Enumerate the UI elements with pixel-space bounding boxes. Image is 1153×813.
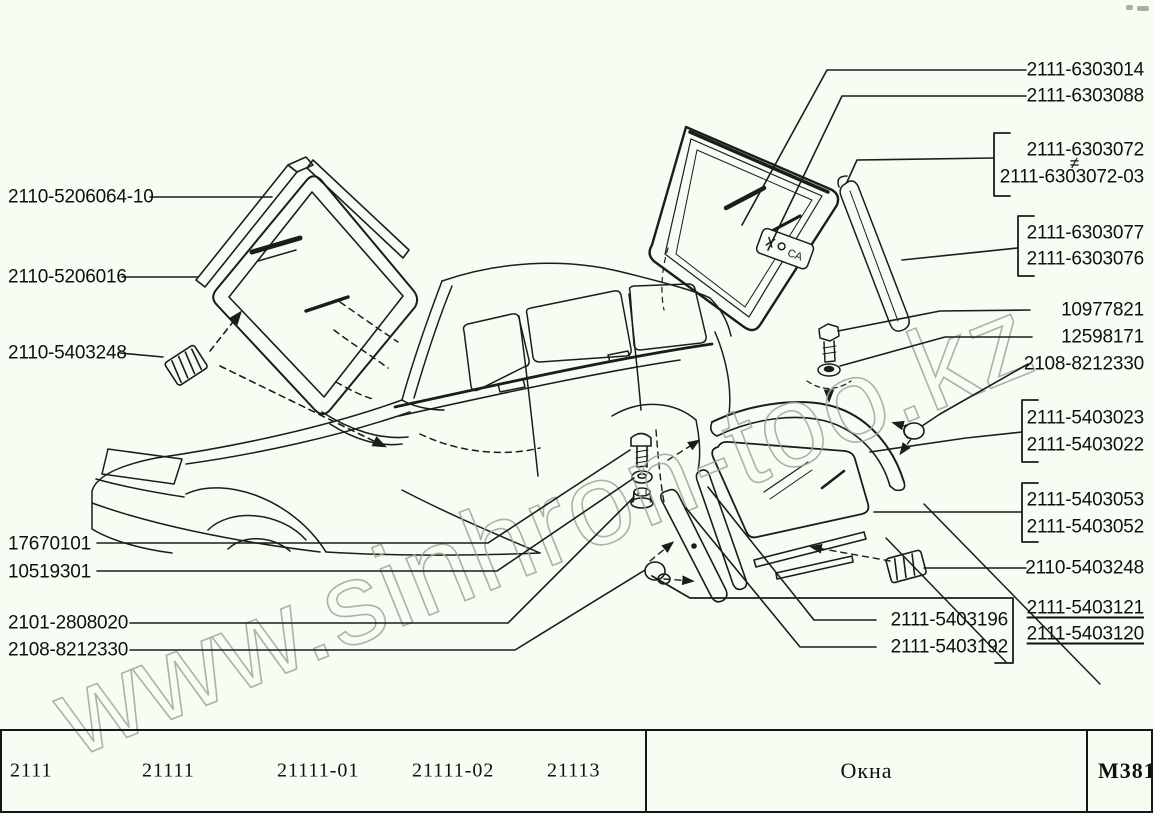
windshield-clip [164, 344, 208, 386]
scan-artifact [1126, 5, 1133, 10]
part-label-quarter-frame-b: 2111-5403052 [1027, 518, 1144, 537]
glass-marking-plate [755, 227, 815, 270]
part-label-nut: 2101-2808020 [8, 614, 128, 633]
model-code: 21111-02 [412, 760, 494, 783]
part-label-molding-a: 2111-6303072 [1027, 141, 1144, 160]
pillar-molding [838, 176, 909, 331]
part-label-clip-left: 2108-8212330 [8, 641, 128, 660]
part-label-quarter-glass-b: 2111-5403022 [1027, 436, 1144, 455]
part-label-strip-upper: 2111-5403196 [891, 611, 1008, 630]
technical-diagram: СА [0, 0, 1153, 813]
window-seal [650, 127, 838, 330]
part-label-quarter-glass-a: 2111-5403023 [1027, 409, 1144, 428]
part-label-rear-seal: 2111-6303088 [1027, 87, 1144, 106]
clip [645, 562, 670, 584]
part-label-screw: 17670101 [8, 535, 91, 554]
section-title: Окна [647, 758, 1086, 784]
sheet-code: М381 [1098, 758, 1153, 784]
headlight [102, 449, 182, 484]
part-label-bolt: 10977821 [1061, 301, 1144, 320]
part-label-pillar-trim-a: 2111-6303077 [1027, 224, 1144, 243]
part-label-windshield-clip: 2110-5403248 [8, 344, 127, 363]
scan-artifact [1137, 6, 1149, 11]
part-label-strip-lower: 2111-5403192 [891, 638, 1008, 657]
model-code: 2111 [10, 760, 53, 783]
part-label-rear-glass: 2111-6303014 [1027, 61, 1144, 80]
part-label-molding-b: 2111-6303072-03 [1000, 168, 1144, 187]
part-label-quarter-frame-a: 2111-5403053 [1027, 491, 1144, 510]
clip [886, 550, 927, 583]
lower-molding-strip [754, 532, 866, 567]
part-label-windshield-molding: 2110-5206064-10 [8, 188, 154, 207]
part-label-bolt-nut: 12598171 [1061, 328, 1144, 347]
part-label-windshield-glass: 2110-5206016 [8, 268, 127, 287]
model-code: 21113 [547, 760, 601, 783]
part-label-molding-kit-b: 2111-5403120 [1027, 625, 1144, 644]
part-label-clip-top: 2108-8212330 [1024, 355, 1144, 374]
parts-catalog-page: СА [0, 0, 1153, 813]
part-label-molding-kit-a: 2111-5403121 [1027, 599, 1144, 618]
model-code: 21111-01 [277, 760, 359, 783]
part-label-pillar-trim-b: 2111-6303076 [1027, 250, 1144, 269]
windshield-assembly [164, 157, 417, 446]
title-block: 2111 21111 21111-01 21111-02 21113 Окна … [0, 729, 1153, 813]
table-divider [1086, 731, 1088, 811]
model-code: 21111 [142, 760, 195, 783]
part-label-clip-right: 2110-5403248 [1025, 559, 1144, 578]
part-label-washer: 10519301 [8, 563, 91, 582]
